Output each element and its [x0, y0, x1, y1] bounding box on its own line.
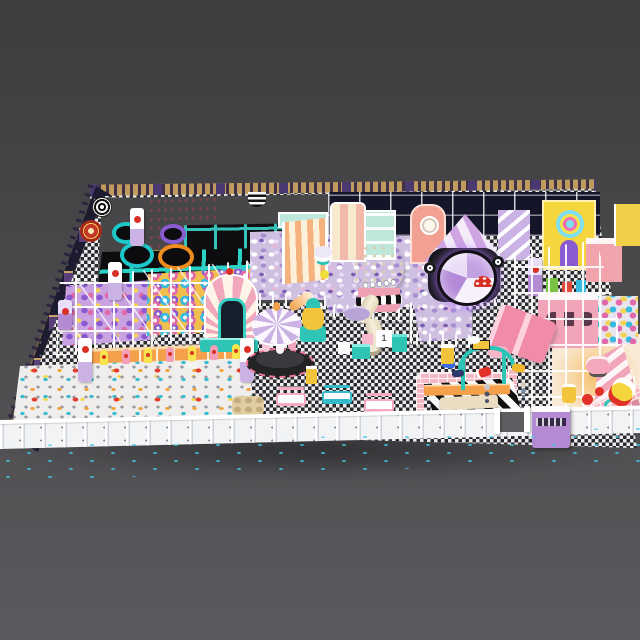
step-block-number: 1 [376, 330, 392, 347]
rainbow-ring-window [556, 210, 584, 238]
clock-face [420, 216, 439, 235]
toadstool [474, 276, 492, 287]
step-block-teal [392, 334, 407, 352]
round-trampoline-purple [160, 224, 186, 244]
ball-blaster-tower [108, 262, 122, 300]
bollard [100, 350, 108, 365]
carousel-finial [273, 302, 280, 311]
red-ball [595, 387, 604, 396]
toy-car-navy [452, 369, 465, 377]
mini-vending [306, 366, 317, 384]
ball-blaster-tower [78, 338, 92, 382]
portal-knob [492, 256, 504, 268]
toy-bunny [468, 336, 480, 344]
bollard [188, 346, 196, 361]
rainbow-arch-tunnel [218, 298, 246, 342]
orange-counter [424, 383, 510, 395]
bollard [144, 348, 152, 363]
spin-wheel-target [80, 220, 102, 242]
portal-knob [424, 262, 436, 274]
bollard [232, 344, 240, 359]
person-figure [484, 384, 490, 390]
gate-post [524, 406, 530, 432]
round-platform [344, 306, 370, 321]
hanging-striped-lamp [248, 192, 266, 207]
sand-table [232, 396, 264, 416]
yellow-hex-house [614, 204, 640, 246]
ball-blaster-tower [130, 208, 144, 246]
ball-blaster-tower [58, 300, 72, 330]
person-figure [521, 382, 526, 387]
yellow-ball [320, 270, 329, 279]
cafe-table-pink [364, 396, 390, 412]
toy-sheep [186, 362, 198, 369]
white-block [338, 342, 350, 354]
bollard [166, 347, 174, 362]
ufo-seesaw [314, 246, 332, 258]
teal-bench [352, 344, 370, 359]
kiddie-ride-machine [441, 344, 454, 364]
spring-pony [586, 356, 610, 374]
toy-car-yellow [512, 363, 526, 373]
carousel-canopy [252, 308, 302, 344]
arch-finial [226, 268, 233, 275]
dartboard-target [92, 197, 112, 217]
vacuum-station-cap [306, 298, 320, 308]
cafe-table-pink [276, 390, 302, 406]
playground-scene: 1 [0, 0, 640, 640]
entrance-gate-opening [500, 412, 524, 432]
toy-barrel [562, 384, 576, 403]
cafe-table-blue [322, 388, 348, 404]
gate-post [494, 408, 500, 434]
bollard [122, 349, 130, 364]
cabinet-sign [536, 418, 566, 426]
vacuum-station-body [302, 306, 324, 330]
gantry-post [502, 352, 506, 384]
red-ball [582, 394, 593, 405]
bollard [210, 345, 218, 360]
